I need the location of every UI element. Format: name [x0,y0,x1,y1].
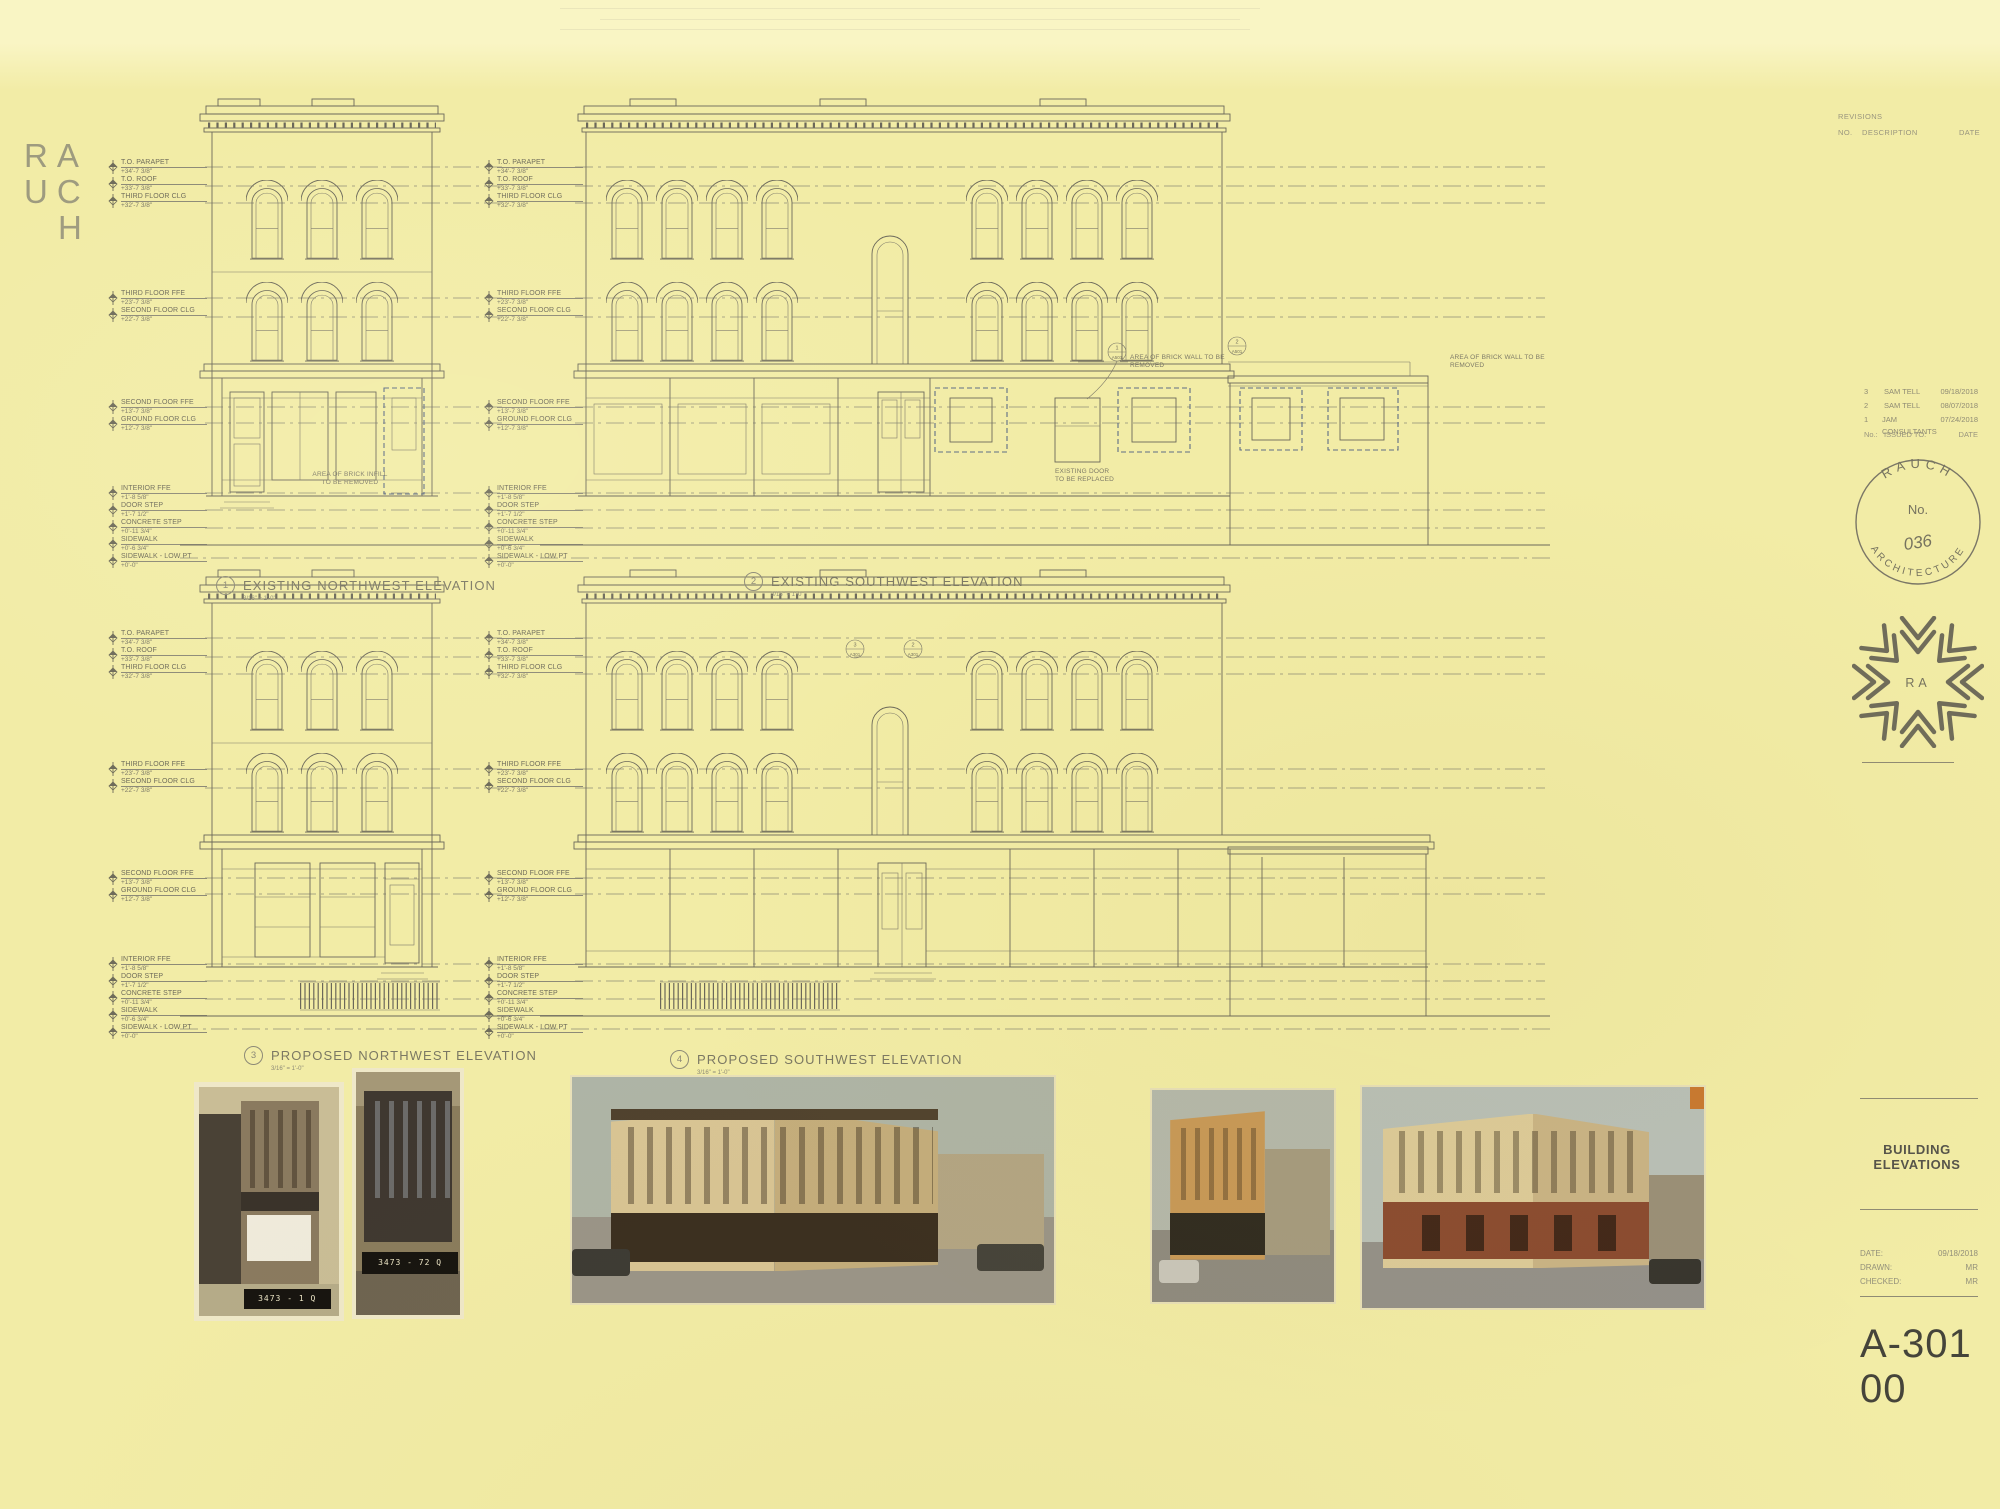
photo-color-corner-mid [1150,1088,1336,1304]
issue-date: 07/24/2018 [1937,414,1978,428]
sheet-number: A-301 00 [1860,1322,2000,1412]
drawing-title-text: PROPOSED SOUTHWEST ELEVATION [697,1052,963,1067]
photo-content [572,1077,1054,1303]
issue-number: 2 [1864,400,1884,414]
detail-ref-number: 1 [1115,346,1118,352]
sheet-meta: DATE: 09/18/2018 DRAWN: MR CHECKED: MR [1860,1248,1978,1290]
drawing-number-bubble: 3 [244,1046,263,1065]
issue-header-to: ISSUED TO: [1884,430,1932,439]
meta-value: MR [1966,1276,1978,1290]
drawing-scale: 3/16" = 1'-0" [771,592,1024,598]
photo-car [977,1244,1044,1271]
meta-value: MR [1966,1262,1978,1276]
level-marker-icon [108,177,118,191]
photo-adjacent-buildings [938,1154,1044,1249]
level-marker-icon [108,991,118,1005]
level-marker-icon [108,957,118,971]
photo-placard: 3473 - 1 Q [244,1289,331,1310]
level-marker-icon [108,779,118,793]
issue-date: 08/07/2018 [1932,400,1978,414]
mark-center-letters: RA [1905,676,1930,690]
level-marker-icon [108,648,118,662]
fold-line [560,8,1260,9]
note-brick-wall: AREA OF BRICK WALL TO BE REMOVED [1450,354,1560,370]
revisions-col-description: DESCRIPTION [1862,128,1950,137]
note-brick-infill: AREA OF BRICK INFILL TO BE REMOVED [308,471,392,487]
photo-historic-1: 3473 - 1 Q [194,1082,344,1321]
issue-row: 2 SAM TELL 08/07/2018 [1864,400,1978,414]
divider-rule [1860,1098,1978,1099]
photo-cornice [611,1109,939,1120]
detail-ref-number: 2 [1235,340,1238,346]
issue-header-date: DATE [1932,430,1978,439]
drawing-title-2: 2 EXISTING SOUTHWEST ELEVATION 3/16" = 1… [744,572,1024,598]
stamp-no-label: No. [1908,502,1928,517]
photo-street [356,1271,460,1315]
logo-line: UC [24,174,91,210]
architect-stamp: RAUCH ARCHITECTURE No. 036 [1848,452,1988,592]
photo-content: 3473 - 72 Q [356,1072,460,1315]
fold-line [560,29,1250,30]
elevation-4-drawing: 3A301 2A301 [480,567,1560,1047]
level-marker-icon [108,631,118,645]
level-marker-icon [108,160,118,174]
drawing-number-bubble: 4 [670,1050,689,1069]
revisions-header: REVISIONS [1838,112,1882,121]
photo-orange-corner [1690,1087,1704,1109]
photo-historic-2: 3473 - 72 Q [352,1068,464,1319]
photo-car [572,1249,630,1276]
detail-ref-sheet: A301 [908,652,919,657]
revisions-col-date: DATE [1950,128,1980,137]
photo-windows [366,1101,449,1198]
drawing-title-4: 4 PROPOSED SOUTHWEST ELEVATION 3/16" = 1… [670,1050,963,1076]
detail-ref-sheet: A301 [850,652,861,657]
photo-cornice [241,1192,319,1210]
photo-building-left [199,1114,247,1288]
photo-windows [615,1127,933,1204]
photo-adjacent-buildings [1649,1175,1704,1259]
stamp-number-handwritten: 036 [1902,531,1934,554]
drawing-number-bubble: 2 [744,572,763,591]
photo-storefront [611,1213,939,1263]
revisions-col-no: NO. [1838,128,1862,137]
photo-storefront-openings [1396,1215,1629,1250]
issue-date: 09/18/2018 [1932,386,1978,400]
detail-ref-sheet: A501 [1112,355,1123,360]
level-marker-icon [108,308,118,322]
issue-recipient: JAM CONSULTANTS [1882,414,1937,428]
drawing-title-text: EXISTING NORTHWEST ELEVATION [243,578,496,593]
photo-windows [241,1110,319,1188]
level-marker-icon [108,1008,118,1022]
level-marker-icon [108,1025,118,1039]
photo-storefront [1170,1213,1265,1255]
issue-table: 3 SAM TELL 09/18/2018 2 SAM TELL 08/07/2… [1864,386,1978,428]
divider-rule [1860,1296,1978,1297]
photo-car [1159,1260,1199,1283]
detail-ref-sheet: A501 [1232,349,1243,354]
meta-label: DRAWN: [1860,1262,1892,1276]
level-marker-icon [108,974,118,988]
issue-row: 1 JAM CONSULTANTS 07/24/2018 [1864,414,1978,428]
elevation-2-drawing: 1A501 2A501 [480,96,1560,576]
divider-rule [1862,762,1954,763]
fold-line [600,19,1240,20]
logo-line: H [58,210,91,246]
meta-label: DATE: [1860,1248,1883,1262]
issue-header-no: No.: [1864,430,1884,439]
elevation-proposed-southwest: T.O. PARAPET+34'-7 3/8"T.O. ROOF+33'-7 3… [420,567,1580,1049]
photo-content: 3473 - 1 Q [199,1087,339,1316]
issue-number: 3 [1864,386,1884,400]
photo-color-corner-large [570,1075,1056,1305]
logo-line: RA [24,138,91,174]
level-marker-icon [108,417,118,431]
elevation-existing-southwest: T.O. PARAPET+34'-7 3/8"T.O. ROOF+33'-7 3… [420,96,1580,578]
drawing-scale: 3/16" = 1'-0" [243,596,496,602]
photo-car [1649,1259,1700,1283]
meta-row: CHECKED: MR [1860,1276,1978,1290]
detail-ref-number: 3 [853,643,856,649]
level-marker-icon [108,400,118,414]
photo-windows [1172,1128,1263,1200]
meta-label: CHECKED: [1860,1276,1901,1290]
drawing-title-text: PROPOSED NORTHWEST ELEVATION [271,1048,537,1063]
photo-blank-sign [247,1215,311,1261]
meta-row: DATE: 09/18/2018 [1860,1248,1978,1262]
photo-windows [1386,1131,1646,1193]
level-marker-icon [108,291,118,305]
level-marker-icon [108,762,118,776]
issue-recipient: SAM TELL [1884,386,1932,400]
level-marker-icon [108,194,118,208]
drawing-title-1: 1 EXISTING NORTHWEST ELEVATION 3/16" = 1… [216,576,496,602]
revisions-columns: NO. DESCRIPTION DATE [1838,128,1980,137]
stamp-arc-top-text: RAUCH [1879,456,1958,482]
level-marker-icon [108,520,118,534]
level-marker-icon [108,665,118,679]
level-marker-icon [108,486,118,500]
meta-value: 09/18/2018 [1938,1248,1978,1262]
issue-table-header: No.: ISSUED TO: DATE [1864,430,1978,439]
photo-content [1152,1090,1334,1302]
drawing-title-text: EXISTING SOUTHWEST ELEVATION [771,574,1024,589]
rauch-corner-logo: RA UC H [24,138,91,246]
level-marker-icon [108,554,118,568]
photo-placard: 3473 - 72 Q [362,1252,458,1274]
level-marker-icon [108,871,118,885]
note-brick-wall: AREA OF BRICK WALL TO BE REMOVED [1130,354,1230,370]
issue-number: 1 [1864,414,1882,428]
level-marker-icon [108,537,118,551]
svg-text:RAUCH: RAUCH [1879,456,1958,482]
level-marker-icon [108,888,118,902]
sheet-title: BUILDING ELEVATIONS [1852,1142,1982,1172]
divider-rule [1860,1209,1978,1210]
detail-ref-number: 2 [911,643,914,649]
photo-adjacent-buildings [1265,1149,1331,1255]
photo-color-corner-right [1360,1085,1706,1310]
photo-content [1362,1087,1704,1308]
level-marker-icon [108,503,118,517]
meta-row: DRAWN: MR [1860,1262,1978,1276]
issue-recipient: SAM TELL [1884,400,1932,414]
note-door-replace: EXISTING DOOR TO BE REPLACED [1055,468,1125,484]
drawing-number-bubble: 1 [216,576,235,595]
issue-row: 3 SAM TELL 09/18/2018 [1864,386,1978,400]
rauch-pinwheel-mark: RA [1852,616,1984,748]
